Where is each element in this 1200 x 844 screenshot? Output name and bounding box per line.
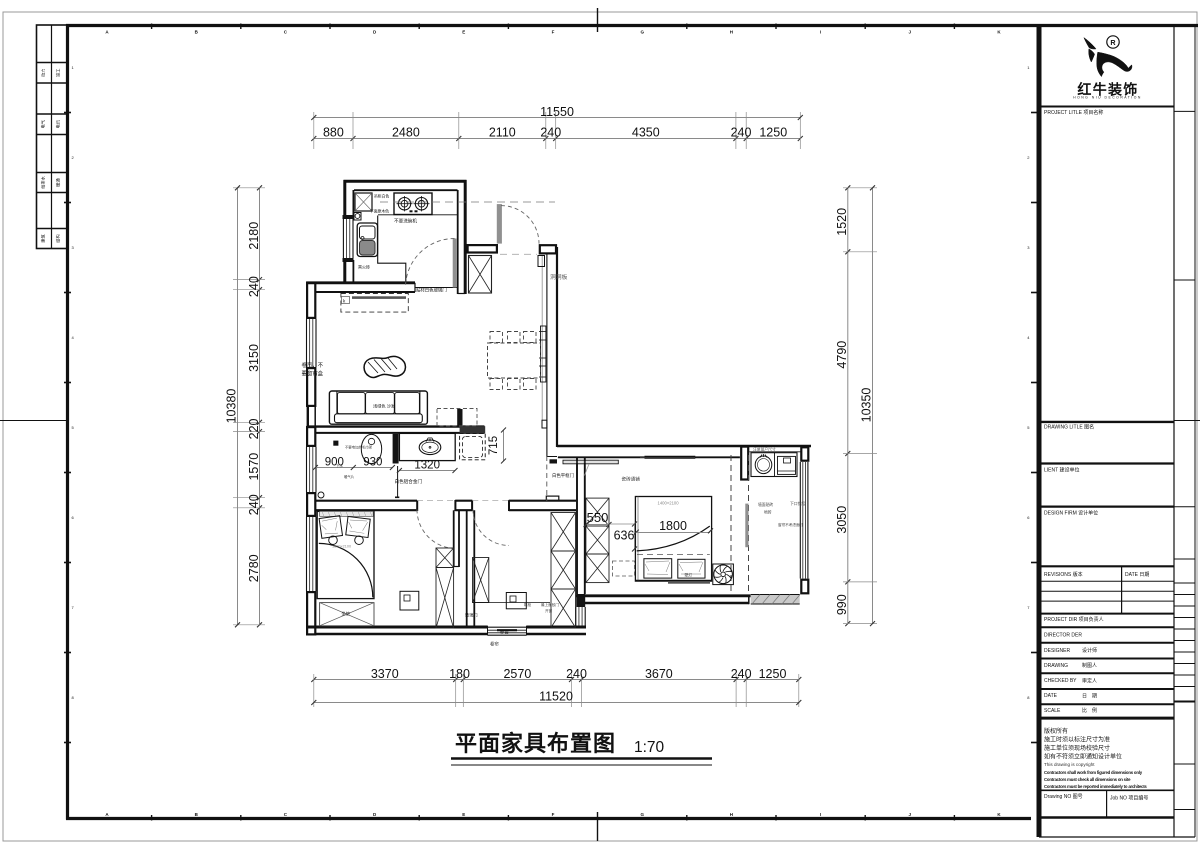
svg-text:DESIGN FIRM 设计单位: DESIGN FIRM 设计单位 [1044,509,1098,516]
svg-text:黑火砖: 黑火砖 [358,264,370,270]
svg-text:开窗: 开窗 [545,608,553,613]
svg-text:Job NO 项目编号: Job NO 项目编号 [1110,795,1148,802]
svg-text:1320: 1320 [414,460,440,472]
svg-text:洞洞板: 洞洞板 [550,273,568,281]
svg-text:I: I [820,30,821,35]
svg-text:竣工: 竣工 [55,69,62,77]
svg-text:2780: 2780 [247,554,261,582]
svg-text:240: 240 [731,125,752,139]
svg-text:动力: 动力 [40,69,47,77]
svg-text:240: 240 [566,667,587,681]
svg-text:10380: 10380 [224,389,238,424]
svg-text:注意窗户尺寸: 注意窗户尺寸 [753,447,776,452]
svg-text:设计师: 设计师 [1082,647,1097,654]
svg-text:10350: 10350 [859,388,873,423]
svg-text:浅绿色 沙发: 浅绿色 沙发 [373,403,396,410]
svg-text:550: 550 [587,510,609,525]
svg-text:F: F [552,812,555,817]
svg-text:下水: 下水 [336,463,343,468]
svg-text:下口错层: 下口错层 [790,501,805,506]
svg-text:日 期: 日 期 [1082,693,1097,699]
svg-text:比 例: 比 例 [1082,707,1097,714]
svg-text:1570: 1570 [247,453,261,481]
svg-text:240: 240 [247,494,261,515]
svg-text:贴材白色玻璃门: 贴材白色玻璃门 [416,287,447,294]
svg-text:1800: 1800 [659,519,687,533]
svg-text:最上面蚊门: 最上面蚊门 [541,602,559,607]
svg-text:E: E [462,30,465,35]
svg-text:PROJECT DIR 项目负责人: PROJECT DIR 项目负责人 [1044,616,1104,623]
svg-text:HONG NIU DECORATION: HONG NIU DECORATION [1073,96,1142,100]
svg-text:施工时须以标注尺寸为准: 施工时须以标注尺寸为准 [1044,736,1110,744]
svg-text:结构: 结构 [55,234,62,242]
svg-text:DATE 日期: DATE 日期 [1125,572,1149,578]
svg-text:吊柜白色: 吊柜白色 [374,194,389,199]
svg-text:建筑: 建筑 [40,234,47,243]
svg-text:白色平框门: 白色平框门 [552,472,574,479]
svg-text:990: 990 [835,594,849,615]
svg-text:移窗: 移窗 [500,629,509,636]
svg-text:240: 240 [247,276,261,297]
svg-text:卷帘，不: 卷帘，不 [302,361,324,369]
svg-text:墙面贴砖: 墙面贴砖 [758,502,773,507]
svg-text:I: I [820,812,821,817]
svg-text:1250: 1250 [759,125,787,139]
svg-text:3370: 3370 [371,667,399,681]
svg-text:1400×2100: 1400×2100 [658,501,680,506]
svg-text:暖气片: 暖气片 [344,474,355,479]
svg-text:4350: 4350 [632,125,660,139]
svg-text:240: 240 [540,125,561,139]
svg-text:180: 180 [449,667,470,681]
svg-text:930: 930 [363,457,382,469]
svg-text:玻璃门: 玻璃门 [465,612,478,619]
svg-text:版权所有: 版权所有 [1044,727,1068,735]
svg-text:2480: 2480 [392,125,420,139]
svg-text:电讯: 电讯 [55,119,62,128]
svg-text:DIRECTOR DER: DIRECTOR DER [1044,632,1082,638]
svg-text:审定人: 审定人 [1082,677,1097,684]
svg-text:E: E [462,812,465,817]
svg-text:2110: 2110 [489,125,516,139]
svg-text:白色铝合金门: 白色铝合金门 [395,478,423,485]
svg-text:暖通: 暖通 [55,178,62,187]
svg-text:PROJECT LITLE 项目名称: PROJECT LITLE 项目名称 [1044,109,1103,116]
svg-text:H: H [730,30,733,35]
svg-text:Contractors must check all dim: Contractors must check all dimensions on… [1044,777,1131,782]
svg-text:下面原木色: 下面原木色 [370,209,389,214]
svg-text:1250: 1250 [759,667,787,681]
svg-text:鞋柜: 鞋柜 [524,602,532,607]
svg-text:G: G [640,30,644,35]
svg-text:3050: 3050 [835,506,849,534]
svg-text:R: R [1110,38,1116,47]
svg-text:REVISIONS 版本: REVISIONS 版本 [1044,571,1083,578]
svg-text:1500×2100: 1500×2100 [332,545,351,549]
svg-text:给排水: 给排水 [40,175,47,188]
svg-text:DESIGNER: DESIGNER [1044,648,1071,654]
svg-text:880: 880 [323,125,344,139]
svg-text:1:70: 1:70 [634,739,665,756]
svg-text:电气: 电气 [40,119,46,128]
svg-text:Drawing NO 图号: Drawing NO 图号 [1044,794,1083,800]
svg-text:Contractors shall work from fi: Contractors shall work from figured dime… [1044,770,1143,775]
svg-text:瓷砖通铺: 瓷砖通铺 [622,476,641,483]
svg-text:2570: 2570 [503,667,531,681]
svg-text:不要电加热毛巾架: 不要电加热毛巾架 [345,445,373,450]
svg-text:LIENT 建设单位: LIENT 建设单位 [1044,467,1079,474]
svg-text:220: 220 [247,418,261,439]
svg-text:窗帘不考虑面时: 窗帘不考虑面时 [778,522,804,527]
svg-text:4790: 4790 [835,341,849,369]
svg-text:平面家具布置图: 平面家具布置图 [455,731,616,756]
svg-text:要窗帘盒: 要窗帘盒 [302,370,324,378]
svg-text:636: 636 [614,529,635,543]
svg-text:DRAWING LITLE 图名: DRAWING LITLE 图名 [1044,424,1094,431]
svg-text:1520: 1520 [835,208,849,236]
svg-text:SCALE: SCALE [1044,708,1061,714]
svg-text:F: F [552,30,555,35]
svg-text:如有不符须立即通知设计单位: 如有不符须立即通知设计单位 [1044,753,1122,761]
svg-text:11520: 11520 [539,689,573,703]
svg-text:CHECKED BY: CHECKED BY [1044,678,1077,684]
svg-text:DRAWING: DRAWING [1044,663,1068,669]
svg-text:卷帘: 卷帘 [490,641,499,648]
svg-text:H: H [730,812,733,817]
svg-text:This drawing is copyright: This drawing is copyright [1044,762,1095,767]
svg-text:G: G [640,812,644,817]
svg-text:715: 715 [488,436,500,455]
svg-text:DATE: DATE [1044,693,1058,699]
svg-text:Contractors must be reported i: Contractors must be reported immediately… [1044,784,1147,789]
svg-text:240: 240 [731,667,752,681]
svg-text:11550: 11550 [540,105,574,119]
svg-text:施工单位须现场校验尺寸: 施工单位须现场校验尺寸 [1044,744,1110,752]
svg-text:3670: 3670 [645,667,673,681]
svg-text:坐垫: 坐垫 [342,610,351,616]
svg-text:地砖: 地砖 [764,510,772,515]
svg-text:2180: 2180 [247,222,261,250]
svg-text:壁灯: 壁灯 [685,573,693,578]
svg-text:不要洗碗机: 不要洗碗机 [394,218,417,225]
svg-text:3150: 3150 [247,344,261,372]
svg-text:制图人: 制图人 [1082,662,1097,669]
